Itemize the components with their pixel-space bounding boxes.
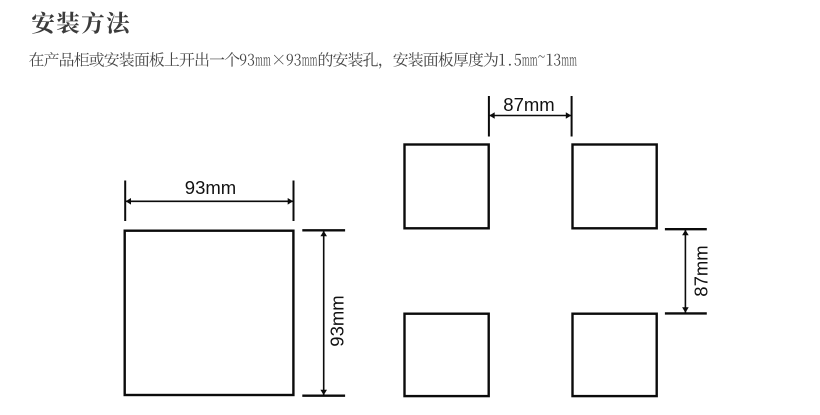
svg-text:87mm: 87mm	[503, 94, 554, 115]
svg-text:93mm: 93mm	[185, 177, 236, 198]
svg-text:93mm: 93mm	[327, 295, 348, 346]
svg-text:87mm: 87mm	[691, 245, 712, 296]
